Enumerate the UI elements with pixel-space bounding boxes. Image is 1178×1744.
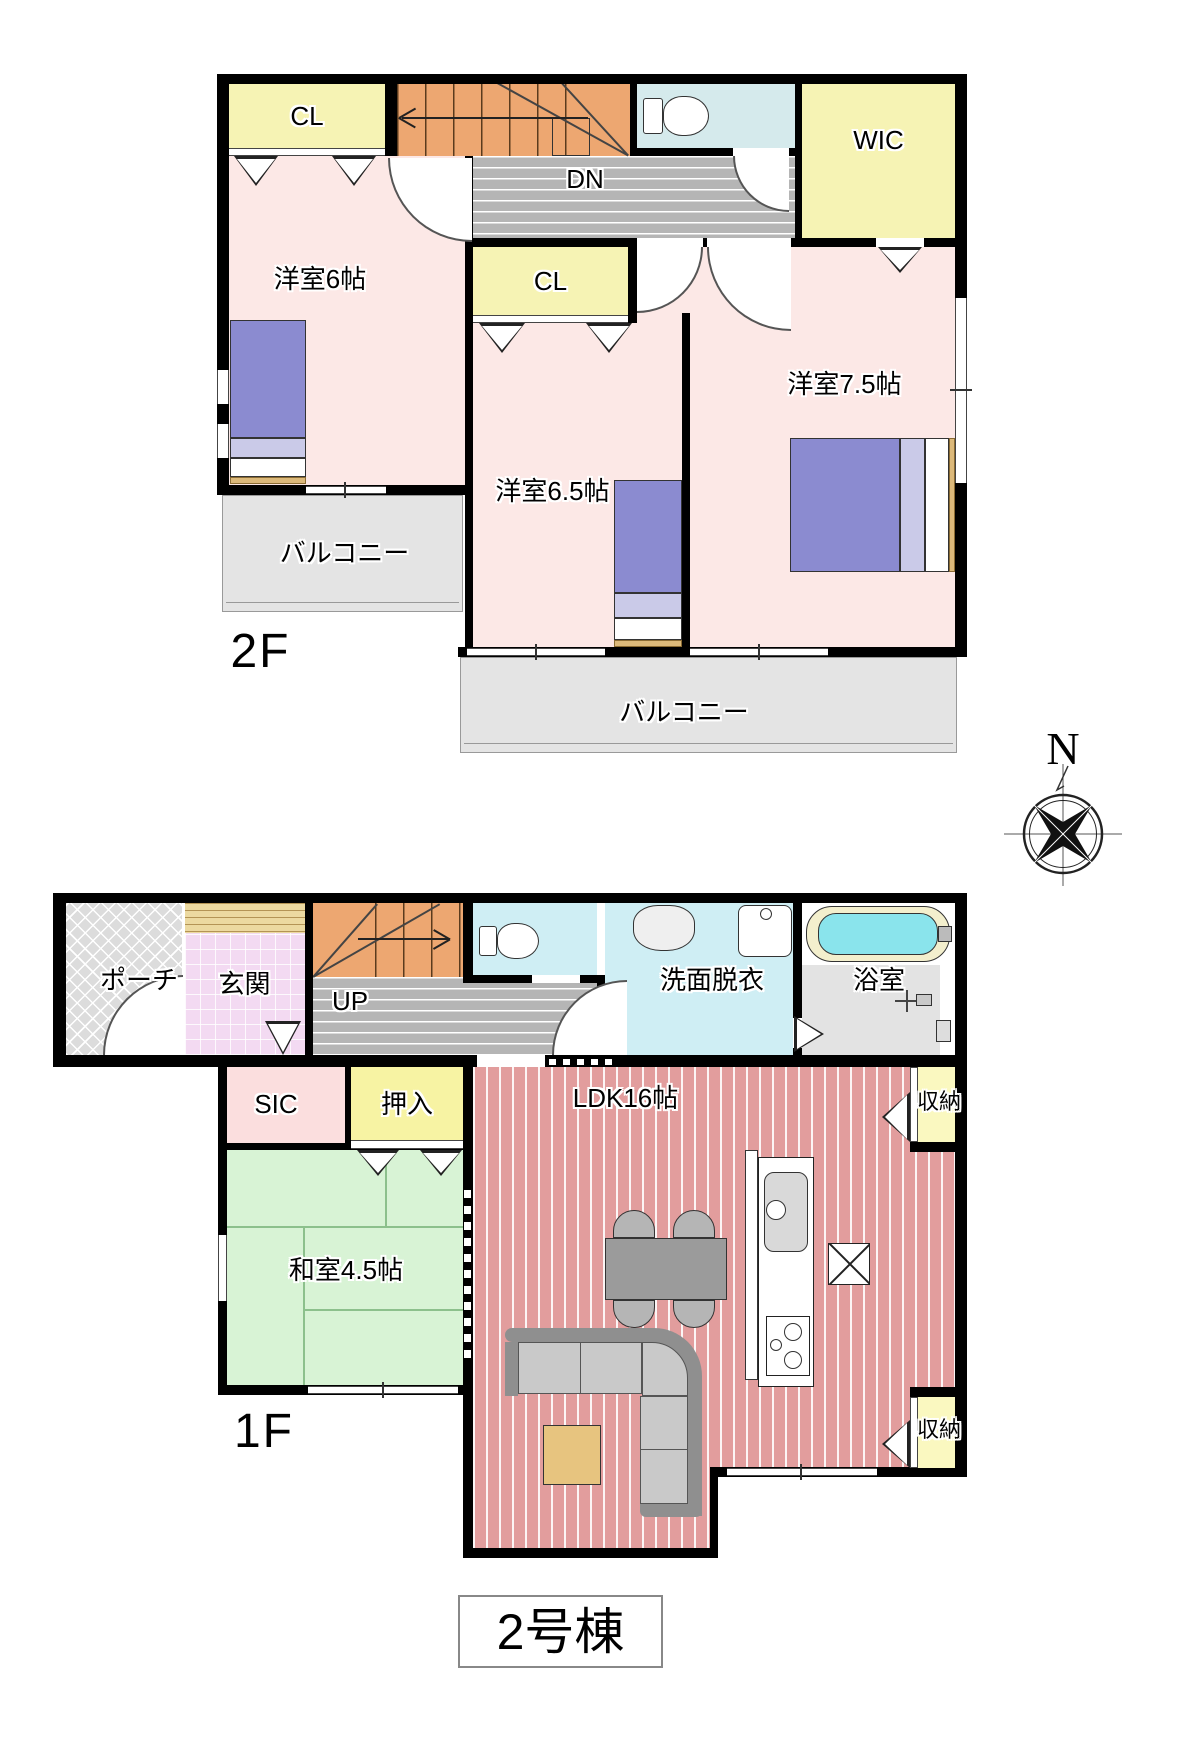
dashed-opening [549,1059,615,1065]
window [217,370,229,404]
compass-icon [1000,764,1126,890]
bed-base [614,640,682,647]
entrance-step [185,903,305,933]
wall [710,1467,718,1558]
wall [682,313,690,647]
x-marked-fixture [828,1243,870,1285]
room-label: DN [545,162,625,196]
tatami-line [227,1226,463,1228]
room-label: 洋室7.5帖 [752,365,937,403]
room-label: 浴室 [833,960,925,1000]
sofa-seat [640,1396,688,1504]
bed-sheet [925,438,949,572]
sofa-armrest [505,1342,518,1396]
wall [345,1067,351,1150]
toilet-icon [643,98,663,134]
bed-sheet [230,458,306,477]
room-label: 洋室6.5帖 [465,472,640,510]
floor-label-2f: 2F [213,624,308,680]
bed-icon [230,320,306,438]
sofa-cushion-line [640,1449,688,1450]
closet-door [229,148,385,156]
window [306,486,386,494]
bed-pillow [230,438,306,458]
fusuma-dashed [464,1190,471,1360]
stair-landing [552,118,590,156]
room-label: バルコニー [263,534,426,572]
window-tick [758,644,760,660]
building-title: 2号棟 [458,1595,663,1668]
wall [218,1055,227,1150]
sofa-back [505,1328,655,1342]
wall [385,74,397,156]
wall [910,1387,955,1397]
wall [305,903,313,1055]
toilet-icon [497,923,539,959]
wall [463,1548,718,1558]
room-label: 収納 [902,1414,976,1446]
floor-plan: CL DN WIC 洋室6帖 CL 洋室6.5帖 洋室7.5帖 バルコニー バル… [0,0,1178,1744]
wall [955,893,967,1477]
door-gap [477,1055,545,1067]
window [218,1235,227,1301]
sink-faucet-icon [766,1200,786,1220]
stair-arrow-line [402,117,588,119]
wall [463,897,473,977]
room-label: CL [247,98,367,134]
room-label: 和室4.5帖 [262,1250,430,1290]
bath-stool-icon [936,1020,951,1042]
window-tick [800,1464,802,1480]
rug-table [543,1425,601,1485]
room-label: UP [318,982,382,1020]
room-label: 洋室6帖 [240,260,400,298]
bath-faucet-icon [938,926,952,942]
room-label: 洗面脱衣 [633,960,791,1000]
door-gap [637,238,703,247]
wall [217,74,967,84]
bed-base [230,477,306,484]
balcony-inner-line [464,743,953,744]
toilet-icon [663,96,709,136]
sofa-cushion-line [580,1342,581,1394]
wall [630,74,637,156]
room-wic [802,82,955,238]
door-gap [876,238,924,247]
tatami-line [303,1309,463,1311]
stove-burner [784,1351,802,1369]
bed-pillow [614,593,682,618]
washing-machine-knob [760,908,772,920]
bathtub-water [818,913,938,955]
window-tick [535,644,537,660]
room-label: 玄関 [202,964,287,1004]
bed-sheet [614,618,682,640]
wall [955,483,967,657]
door-gap [532,975,580,983]
room-label: WIC [802,122,955,158]
closet-door [351,1140,463,1149]
closet-door [473,315,628,323]
washbasin-icon [633,905,695,951]
stairs-2f [397,82,567,156]
window-tick [382,1382,384,1398]
door-gap [733,148,789,156]
window-tick [950,389,972,391]
room-label: CL [493,262,608,300]
wall [795,74,802,247]
window [727,1468,877,1476]
room-label: LDK16帖 [528,1078,723,1118]
room-label: 押入 [361,1084,453,1124]
kitchen-counter-lip [745,1150,758,1380]
door-gap [707,238,791,247]
bed-icon [790,438,900,572]
wall [53,893,66,1065]
room-label: 収納 [902,1086,976,1118]
stove-burner [770,1339,782,1351]
wall [910,1142,955,1152]
dining-table [605,1238,727,1300]
wall [53,893,967,903]
room-label: SIC [243,1084,309,1124]
wall [955,250,967,298]
stair-arrow-line [358,938,450,940]
room-label: バルコニー [598,693,770,731]
balcony-inner-line [226,602,459,603]
wall [628,238,637,323]
floor-label-1f: 1F [214,1404,314,1460]
toilet-icon [479,926,497,956]
room-label: ポーチ [78,960,200,1000]
stove-burner [784,1323,802,1341]
wall [793,893,802,1018]
bed-pillow [900,438,925,572]
window-tick [344,482,346,498]
window [217,424,229,458]
sofa-armrest [640,1504,702,1517]
sofa-back [688,1376,702,1516]
wall [955,74,967,250]
